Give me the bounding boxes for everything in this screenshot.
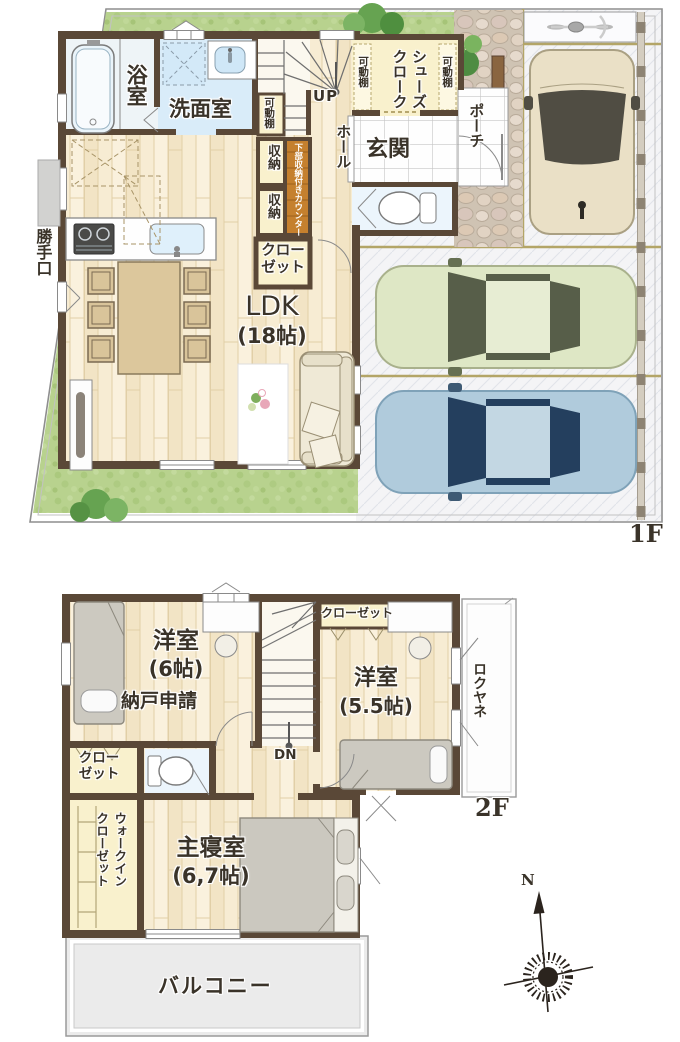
floor-1-tag: 1F bbox=[629, 520, 663, 548]
ldk-size-label: (18帖) bbox=[222, 324, 322, 348]
ldk-name-label: LDK bbox=[230, 291, 314, 322]
movable-shelf-right-label: 可動棚 bbox=[441, 56, 453, 88]
stairs-down-label: DN bbox=[274, 748, 297, 764]
chair-icon-b bbox=[409, 637, 431, 659]
sofa-icon bbox=[300, 352, 354, 468]
movable-shelf-left-label: 可動棚 bbox=[357, 56, 369, 88]
porch-label: ポーチ bbox=[467, 103, 484, 148]
car-icon-sedan-green bbox=[376, 258, 636, 376]
entrance-label: 玄関 bbox=[366, 137, 410, 162]
bath-label: 浴室 bbox=[124, 64, 148, 106]
gate-post bbox=[492, 56, 504, 90]
master-bedroom-name-label: 主寝室 bbox=[163, 835, 259, 861]
closet-1f-label: クローゼット bbox=[259, 243, 307, 276]
washroom-label: 洗面室 bbox=[169, 97, 232, 121]
desk-icon-b bbox=[388, 602, 452, 632]
compass-icon bbox=[504, 891, 593, 1012]
car-icon-suv bbox=[524, 50, 640, 234]
shoes-cloak-label: シューズクローク bbox=[389, 45, 428, 113]
walk-in-closet-label: ウォークインクローゼット bbox=[92, 808, 128, 890]
bedroom-b-name-label: 洋室 bbox=[343, 666, 409, 691]
house-2f bbox=[62, 583, 517, 1036]
storage-label-1: 収納 bbox=[264, 144, 279, 170]
car-icon-sedan-blue bbox=[376, 383, 636, 501]
dining-table-icon bbox=[118, 262, 180, 374]
back-door-label: 勝手口 bbox=[33, 228, 51, 276]
bedroom-b-size-label: (5.5帖) bbox=[325, 695, 427, 718]
movable-shelf-stairs-label: 可動棚 bbox=[263, 97, 275, 129]
bathtub-icon bbox=[72, 40, 114, 133]
desk-icon-a bbox=[203, 602, 259, 632]
washing-machine-icon bbox=[163, 43, 205, 85]
floor-2-tag: 2F bbox=[475, 794, 509, 822]
bedroom-a-size-label: (6帖) bbox=[133, 657, 219, 681]
washroom-sink-icon bbox=[208, 41, 256, 79]
compass-north-label: N bbox=[521, 872, 535, 889]
fence bbox=[638, 12, 645, 520]
balcony-label: バルコニー bbox=[158, 974, 273, 998]
chair-icon-a bbox=[215, 635, 237, 657]
bedroom-a-note-label: 納戸申請 bbox=[121, 691, 197, 713]
floor-plan-sheet: 浴室 洗面室 UP ホール 可動棚 シューズクローク 可動棚 可動棚 玄関 ポー… bbox=[0, 0, 680, 1042]
master-bedroom-size-label: (6,7帖) bbox=[156, 864, 266, 888]
stairs-up-label: UP bbox=[313, 88, 338, 105]
closet-a-label: クローゼット bbox=[321, 607, 393, 621]
closet-b-label: クローゼット bbox=[76, 751, 122, 782]
kitchen-counter bbox=[66, 218, 216, 260]
tv-board-icon bbox=[70, 380, 92, 470]
hall-label: ホール bbox=[334, 124, 351, 169]
storage-label-2: 収納 bbox=[264, 193, 279, 219]
bed-icon-single bbox=[74, 602, 124, 724]
bedroom-a-name-label: 洋室 bbox=[141, 628, 211, 654]
rug-icon bbox=[238, 364, 288, 464]
stove-icon bbox=[74, 224, 114, 254]
flat-roof-label: ロクヤネ bbox=[471, 662, 487, 718]
bed-icon-b bbox=[340, 740, 452, 789]
counter-label: 下部収納付きカウンター bbox=[292, 143, 302, 233]
